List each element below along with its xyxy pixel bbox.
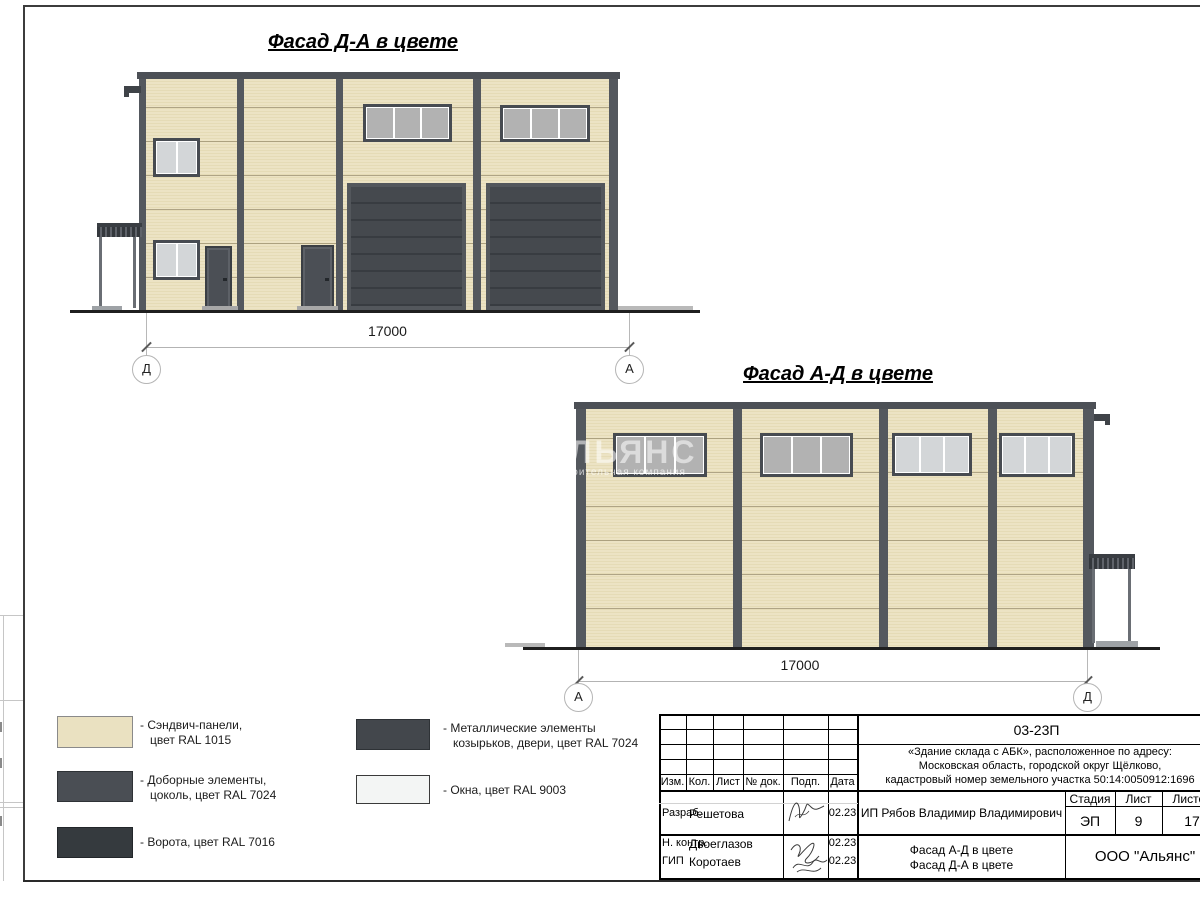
tb-date: 02.23 [828, 855, 857, 867]
facade-da-title: Фасад Д-А в цвете [230, 31, 496, 54]
canopy-post [99, 237, 102, 308]
parapet-cap [137, 72, 620, 79]
ground-line [70, 310, 700, 313]
tb-sheets-value: 17 [1162, 813, 1200, 829]
roof-drain [124, 86, 141, 93]
legend-label: - Окна, цвет RAL 9003 [443, 783, 566, 798]
tb-name: Двоеглазов [689, 837, 753, 851]
tb-company: ООО "Альянс" [1065, 848, 1200, 865]
legend-label: - Сэндвич-панели,цвет RAL 1015 [140, 718, 242, 748]
tb-sheet-value: 9 [1115, 813, 1162, 829]
legend-label: - Доборные элементы,цоколь, цвет RAL 702… [140, 773, 276, 803]
tb-date: 02.23 [828, 837, 857, 849]
facade-ad-title: Фасад А-Д в цвете [698, 363, 978, 386]
tb-date: 02.23 [828, 807, 857, 819]
ground-line [523, 647, 1160, 650]
window [153, 240, 200, 280]
tb-stage-header: Стадия [1065, 792, 1115, 806]
margin-strip-vline [3, 615, 4, 881]
window [760, 433, 853, 477]
canopy [97, 223, 142, 237]
tb-header-data: Дата [828, 775, 857, 790]
window [613, 433, 707, 477]
tb-sheet-title-line2: Фасад Д-А в цвете [858, 858, 1065, 872]
facade-da-building [139, 72, 618, 310]
window [500, 105, 590, 142]
legend-label: - Ворота, цвет RAL 7016 [140, 835, 275, 850]
frame-top [23, 5, 1200, 7]
parapet-cap [574, 402, 1096, 409]
tb-header-ndok: № док. [743, 775, 783, 790]
gate [347, 183, 466, 310]
roof-drain [1094, 414, 1110, 421]
margin-strip-tick [0, 722, 2, 732]
roof-drain [1105, 421, 1110, 425]
tb-name: Коротаев [689, 855, 741, 869]
roof-drain [124, 93, 129, 97]
legend-label: - Металлические элементыкозырьков, двери… [443, 721, 638, 751]
window [999, 433, 1075, 477]
margin-strip-hline [0, 807, 23, 808]
margin-strip-hline [0, 700, 23, 701]
axis-marker: Д [1073, 683, 1102, 712]
signature [785, 793, 827, 831]
dimension-label: 17000 [340, 323, 435, 339]
tb-client: ИП Рябов Владимир Владимирович [858, 806, 1065, 820]
tb-project-line1: «Здание склада с АБК», расположенное по … [860, 746, 1200, 758]
tb-project-code: 03-23П [858, 722, 1200, 738]
tb-header-izm: Изм. [659, 775, 686, 790]
tb-header-kol: Кол. [686, 775, 713, 790]
tb-project-line3: кадастровый номер земельного участка 50:… [860, 774, 1200, 786]
tb-header-podp: Подп. [783, 775, 828, 790]
window [363, 104, 452, 142]
canopy-post [133, 237, 136, 308]
gate [486, 183, 605, 310]
frame-left [23, 5, 25, 882]
door [301, 245, 334, 310]
canopy-post [1092, 569, 1095, 643]
canopy [1089, 554, 1135, 569]
legend-swatch-windows [356, 775, 430, 804]
legend-swatch-gates [57, 827, 133, 858]
axis-marker: Д [132, 355, 161, 384]
margin-strip-tick [0, 758, 2, 768]
canopy-post [1128, 569, 1131, 643]
window [153, 138, 200, 177]
tb-sheet-header: Лист [1115, 792, 1162, 806]
tb-name: Решетова [689, 807, 744, 821]
tb-role: ГИП [662, 855, 684, 867]
drawing-sheet: Фасад Д-А в цвете [0, 0, 1200, 900]
axis-marker: А [564, 683, 593, 712]
dimension-label: 17000 [745, 657, 855, 673]
window [892, 433, 972, 476]
frame-bottom [23, 880, 1200, 882]
tb-stage-value: ЭП [1065, 813, 1115, 829]
tb-project-line2: Московская область, городской округ Щёлк… [860, 760, 1200, 772]
facade-ad-building [576, 402, 1094, 648]
legend-swatch-metal [356, 719, 430, 750]
signature [785, 836, 831, 878]
margin-strip-hline [0, 615, 23, 616]
legend-swatch-sandwich-panels [57, 716, 133, 748]
tb-sheet-title-line1: Фасад А-Д в цвете [858, 843, 1065, 857]
tb-header-list: Лист [713, 775, 743, 790]
margin-strip-tick [0, 816, 2, 826]
axis-marker: А [615, 355, 644, 384]
door [205, 246, 232, 310]
margin-strip-hline [0, 802, 23, 803]
tb-sheets-header: Листов [1162, 792, 1200, 806]
legend-swatch-trim [57, 771, 133, 802]
